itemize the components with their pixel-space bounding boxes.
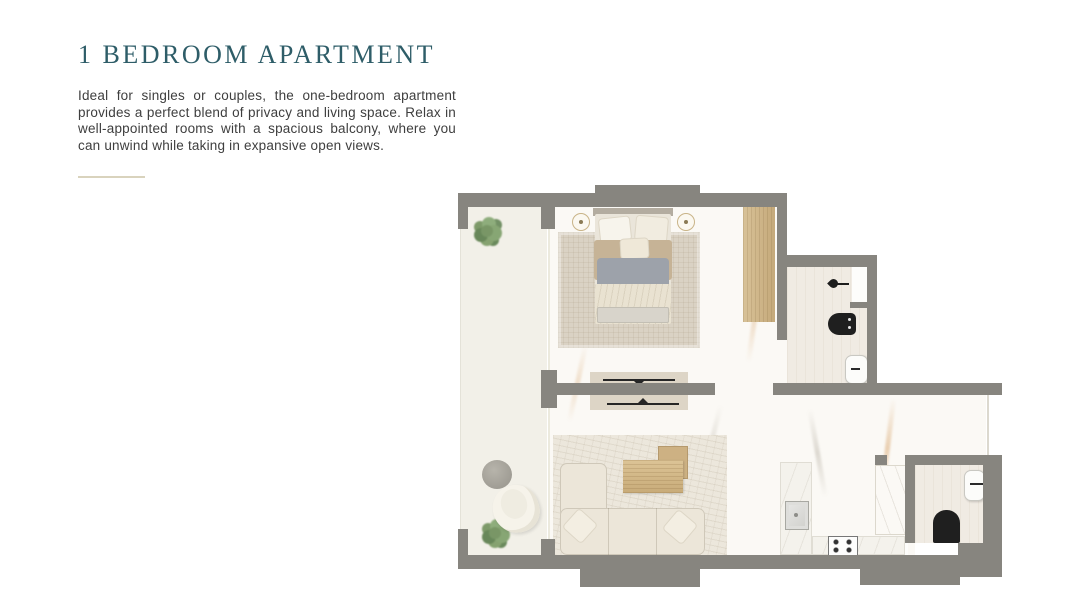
tv-icon bbox=[607, 403, 679, 405]
tv-icon bbox=[603, 379, 675, 381]
hallway-window bbox=[986, 395, 989, 455]
shower-area bbox=[852, 267, 867, 303]
toilet-button bbox=[848, 318, 851, 321]
kitchen-tall-unit bbox=[875, 465, 907, 535]
floor-plan bbox=[455, 183, 1007, 595]
brochure-page: { "header": { "title": "1 BEDROOM APARTM… bbox=[0, 0, 1069, 607]
description-text: Ideal for singles or couples, the one-be… bbox=[78, 88, 456, 154]
balcony-balustrade bbox=[459, 207, 461, 555]
divider-line bbox=[78, 176, 145, 178]
wall-kitchen-stub bbox=[875, 455, 887, 465]
plant-icon bbox=[489, 527, 501, 539]
shower-divider bbox=[850, 302, 867, 308]
wall-bottom-bump-right bbox=[860, 555, 960, 585]
throw-pillow bbox=[619, 237, 649, 259]
wall-bottom-bump-left bbox=[580, 555, 700, 587]
wall-left-stub-top bbox=[458, 193, 468, 229]
wall-bedroom-right bbox=[777, 197, 787, 340]
wall-guest-bath-top bbox=[905, 455, 983, 465]
wall-bottom-corner bbox=[958, 543, 1002, 577]
content-panel: 1 BEDROOM APARTMENT Ideal for singles or… bbox=[78, 40, 456, 178]
round-table bbox=[482, 460, 512, 489]
plant-icon bbox=[481, 225, 493, 237]
shower-arm-icon bbox=[837, 283, 849, 285]
guest-basin-tap-icon bbox=[970, 483, 983, 485]
kitchen-counter-bottom bbox=[812, 536, 905, 555]
bedside-lamp bbox=[572, 213, 590, 231]
wall-bathroom-right bbox=[867, 255, 877, 395]
basin-tap-icon bbox=[851, 368, 860, 370]
double-bed bbox=[593, 208, 673, 325]
wall-guest-bath-left bbox=[905, 455, 915, 543]
toilet bbox=[828, 313, 856, 335]
wall-bathroom-top bbox=[777, 255, 877, 267]
kitchen-sink-drain bbox=[794, 513, 798, 517]
coffee-table bbox=[623, 460, 683, 493]
wall-top-bump bbox=[595, 185, 700, 207]
page-title: 1 BEDROOM APARTMENT bbox=[78, 40, 456, 70]
guest-toilet bbox=[933, 510, 960, 543]
foot-bench bbox=[597, 307, 669, 323]
guest-wash-basin bbox=[964, 470, 985, 501]
wardrobe bbox=[743, 207, 775, 322]
gas-stove bbox=[828, 536, 858, 556]
wall-divider-left bbox=[550, 383, 715, 395]
wall-divider-right bbox=[773, 383, 1002, 395]
bedside-lamp bbox=[677, 213, 695, 231]
glass-door-stub-top bbox=[541, 207, 555, 229]
